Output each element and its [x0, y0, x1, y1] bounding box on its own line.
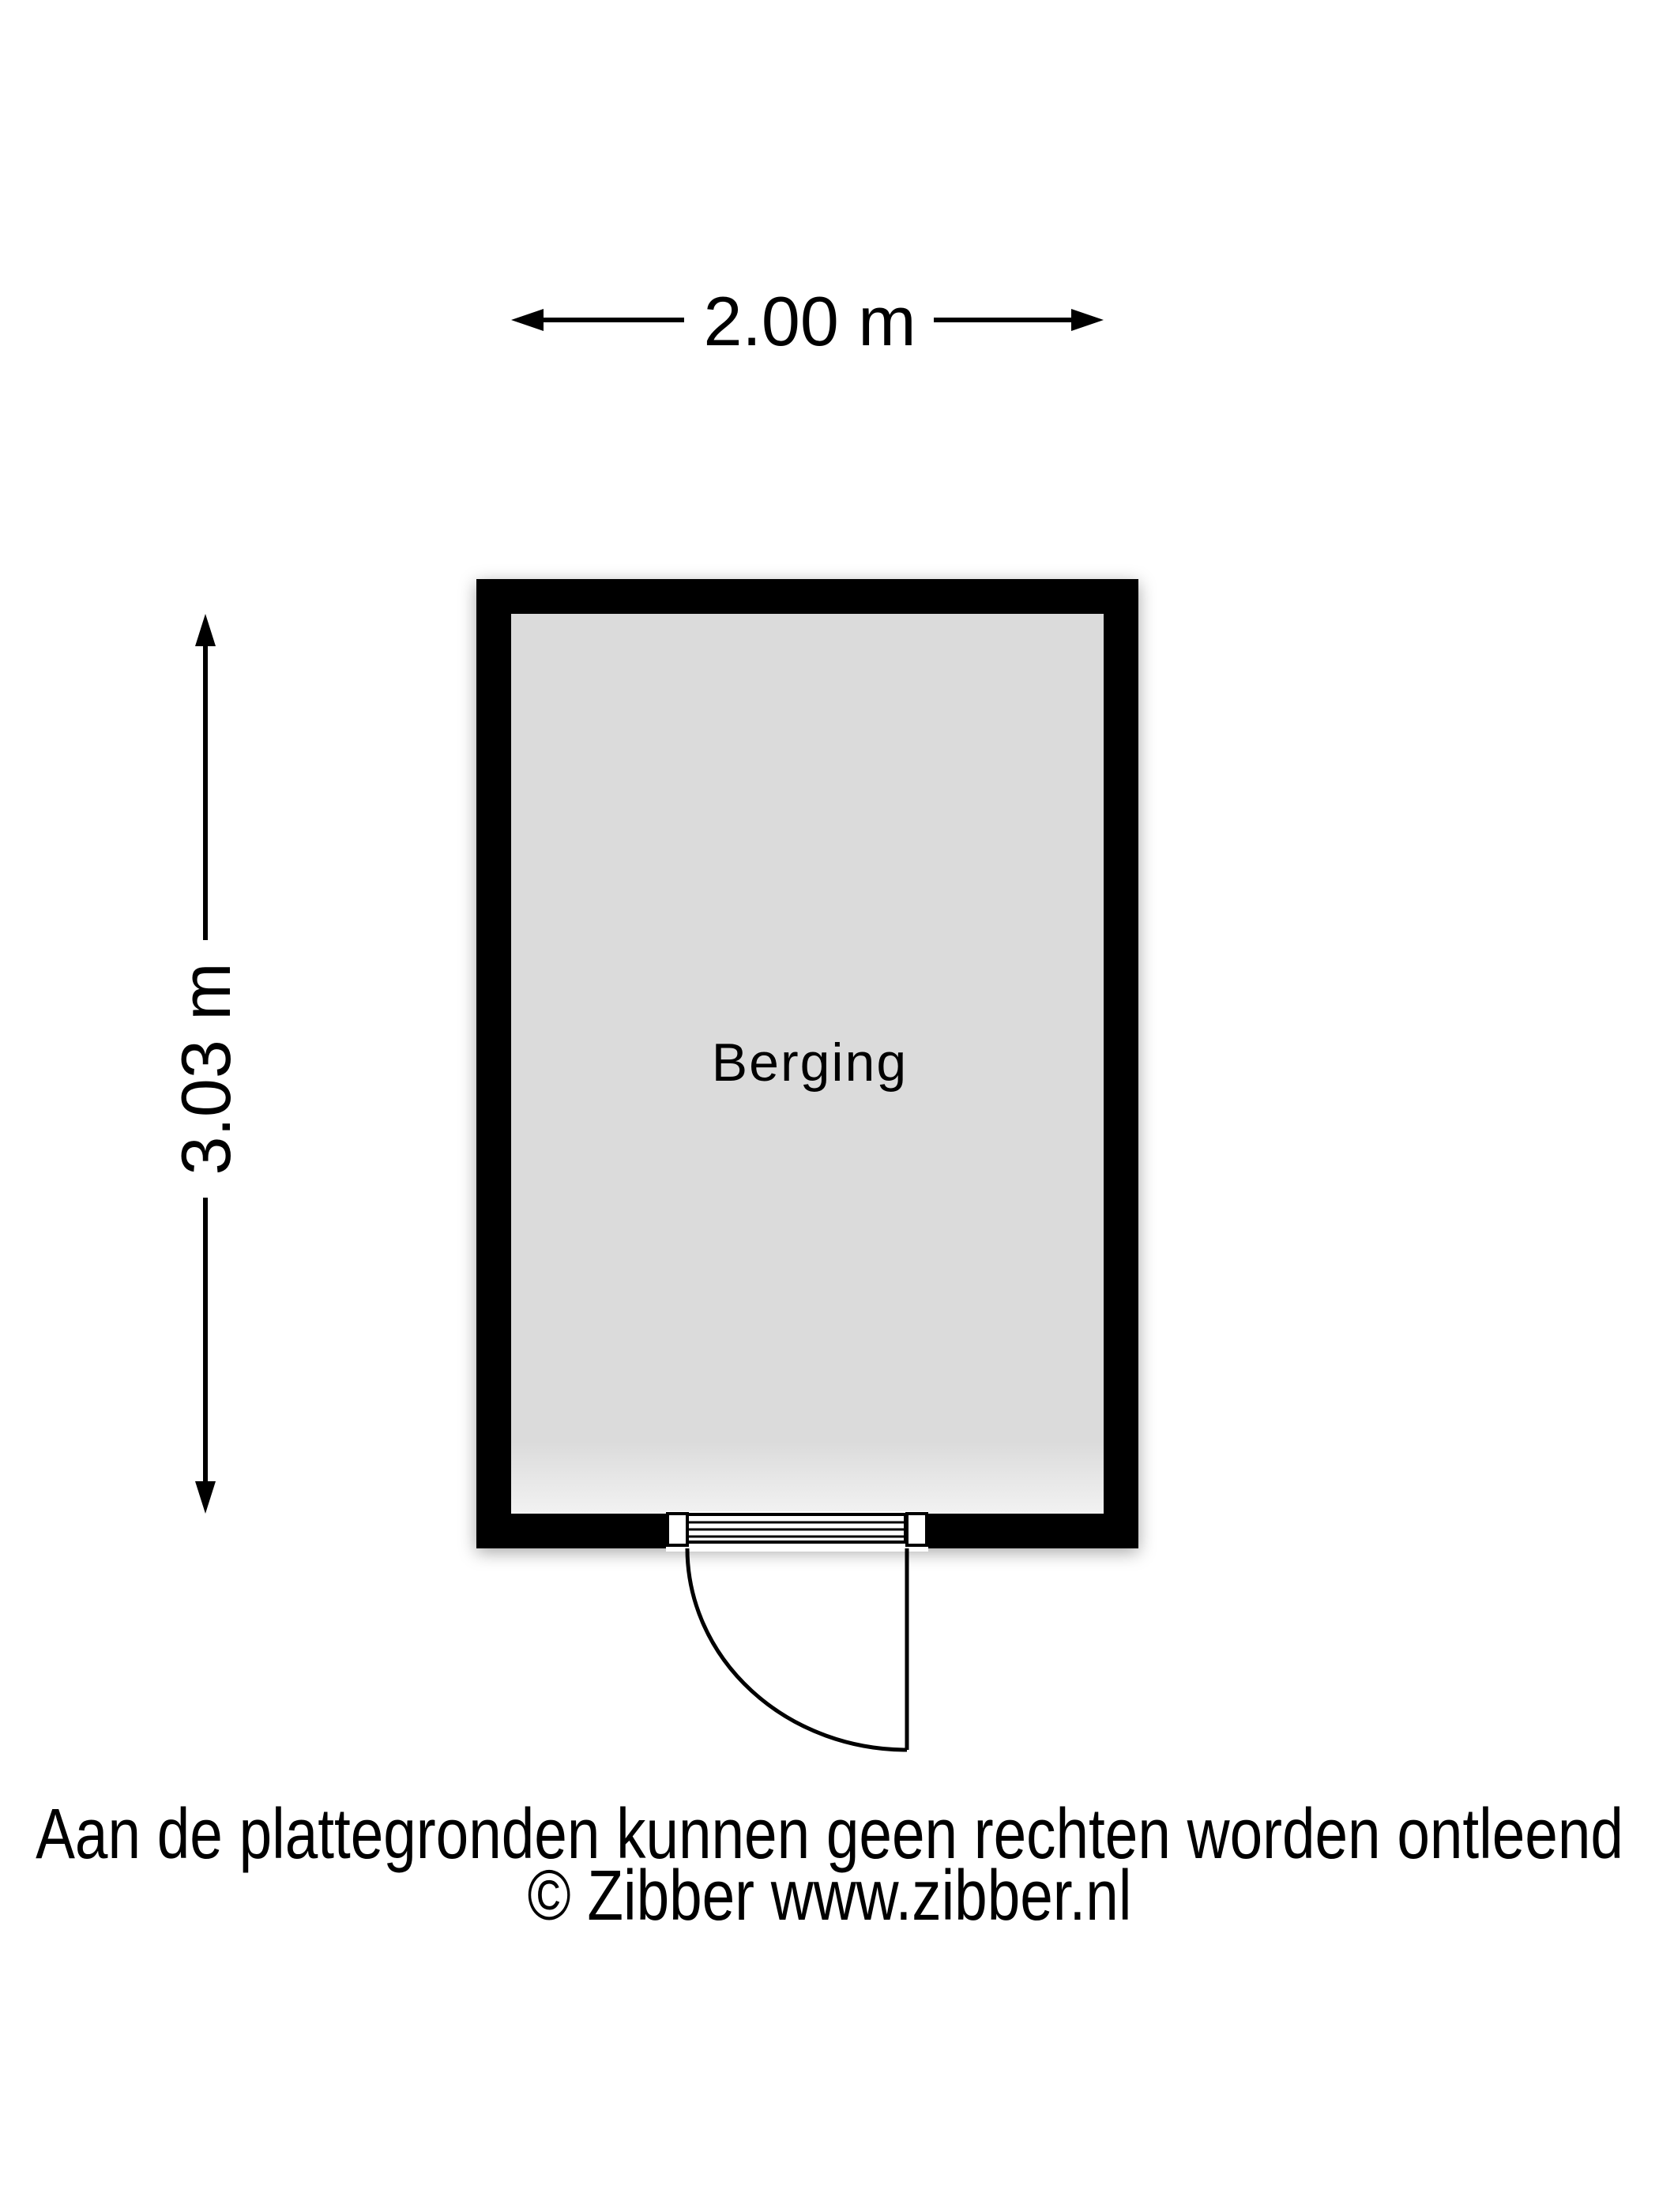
- copyright-text: © Zibber www.zibber.nl: [528, 1855, 1132, 1935]
- height-dimension: 3.03 m: [167, 614, 245, 1514]
- room-label: Berging: [712, 1033, 908, 1093]
- door-swing-arc: [687, 1548, 907, 1750]
- arrow-left-icon: [511, 309, 544, 331]
- storage-room: Berging: [476, 579, 1138, 1750]
- door-jamb-right: [907, 1514, 927, 1545]
- arrow-down-icon: [195, 1481, 216, 1514]
- height-dimension-label: 3.03 m: [167, 962, 245, 1175]
- floorplan-page: Berging 2.00 m: [0, 0, 1659, 2212]
- door-jamb-left: [668, 1514, 687, 1545]
- width-dimension-label: 2.00 m: [703, 282, 916, 360]
- arrow-right-icon: [1071, 309, 1104, 331]
- door: [666, 1511, 928, 1750]
- width-dimension: 2.00 m: [511, 282, 1104, 360]
- floorplan-canvas: Berging 2.00 m: [0, 0, 1659, 2212]
- arrow-up-icon: [195, 614, 216, 646]
- footer: Aan de plattegronden kunnen geen rechten…: [36, 1793, 1623, 1935]
